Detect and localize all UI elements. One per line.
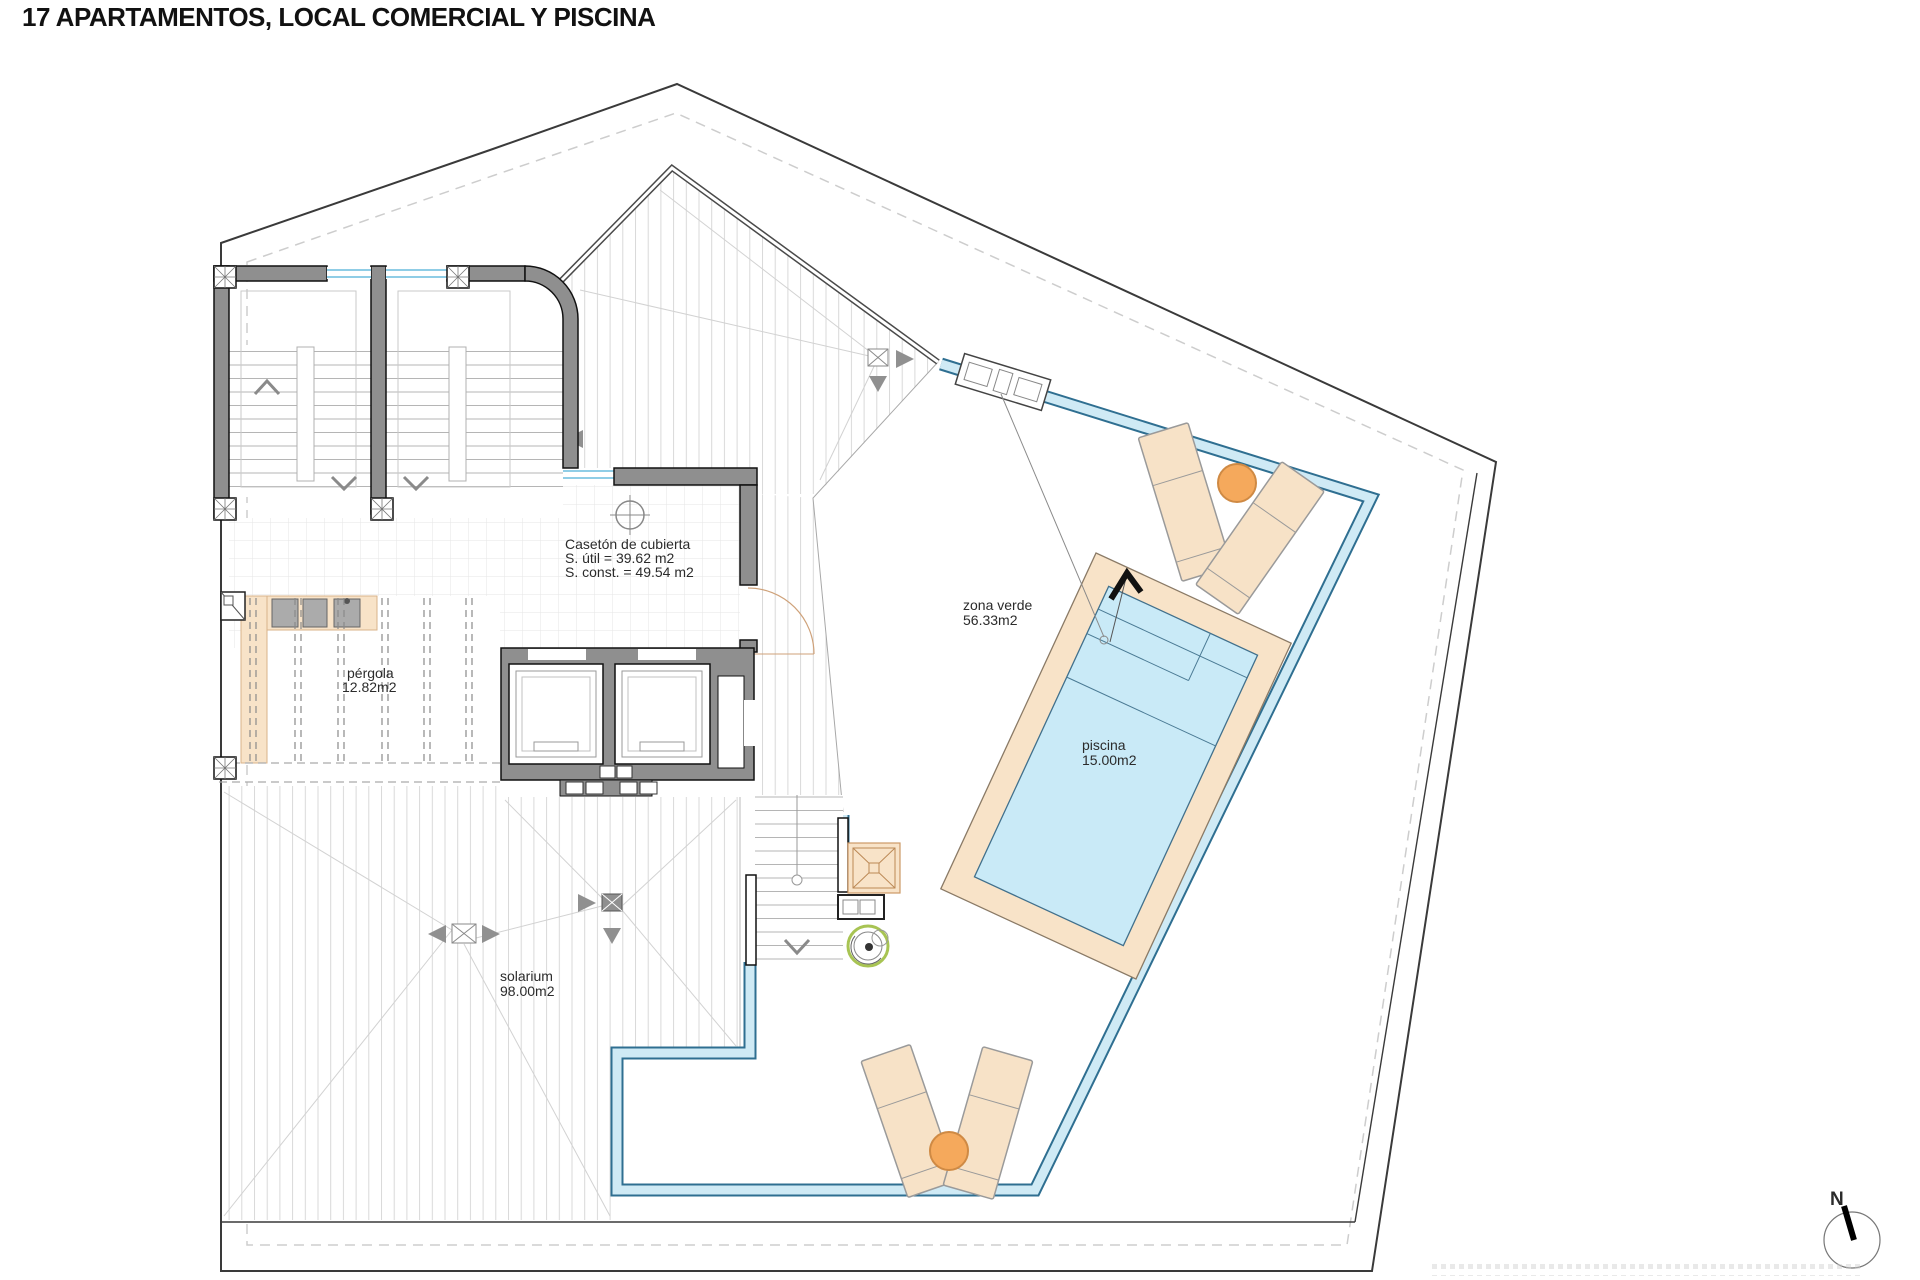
stairs-right xyxy=(386,345,563,497)
pool-stair xyxy=(746,795,848,965)
compass-needle xyxy=(1844,1206,1854,1240)
zona-verde-label: zona verde xyxy=(963,597,1032,613)
piscina-label: piscina xyxy=(1082,737,1126,753)
ac-units xyxy=(272,598,360,627)
north-compass: N xyxy=(1824,1189,1880,1268)
side-table xyxy=(1218,464,1256,502)
outdoor-shower xyxy=(848,843,900,893)
floorplan-page: 17 APARTAMENTOS, LOCAL COMERCIAL Y PISCI… xyxy=(0,0,1920,1280)
solarium-area-value: 98.00m2 xyxy=(500,983,555,999)
solarium-label: solarium xyxy=(500,968,553,984)
bench-unit xyxy=(838,895,884,919)
machine-rooms xyxy=(501,648,756,796)
caseton-const: S. const. = 49.54 m2 xyxy=(565,564,694,580)
side-table xyxy=(930,1132,968,1170)
footer-watermark xyxy=(1430,1264,1860,1276)
north-label: N xyxy=(1830,1189,1844,1210)
pergola-area-value: 12.82m2 xyxy=(342,679,397,695)
floorplan-drawing: Casetón de cubierta S. útil = 39.62 m2 S… xyxy=(0,0,1920,1280)
terrace-gate xyxy=(955,354,1050,411)
stair-block xyxy=(214,266,618,518)
planter xyxy=(848,926,888,966)
zona-verde-area-value: 56.33m2 xyxy=(963,612,1018,628)
piscina-area-value: 15.00m2 xyxy=(1082,752,1137,768)
